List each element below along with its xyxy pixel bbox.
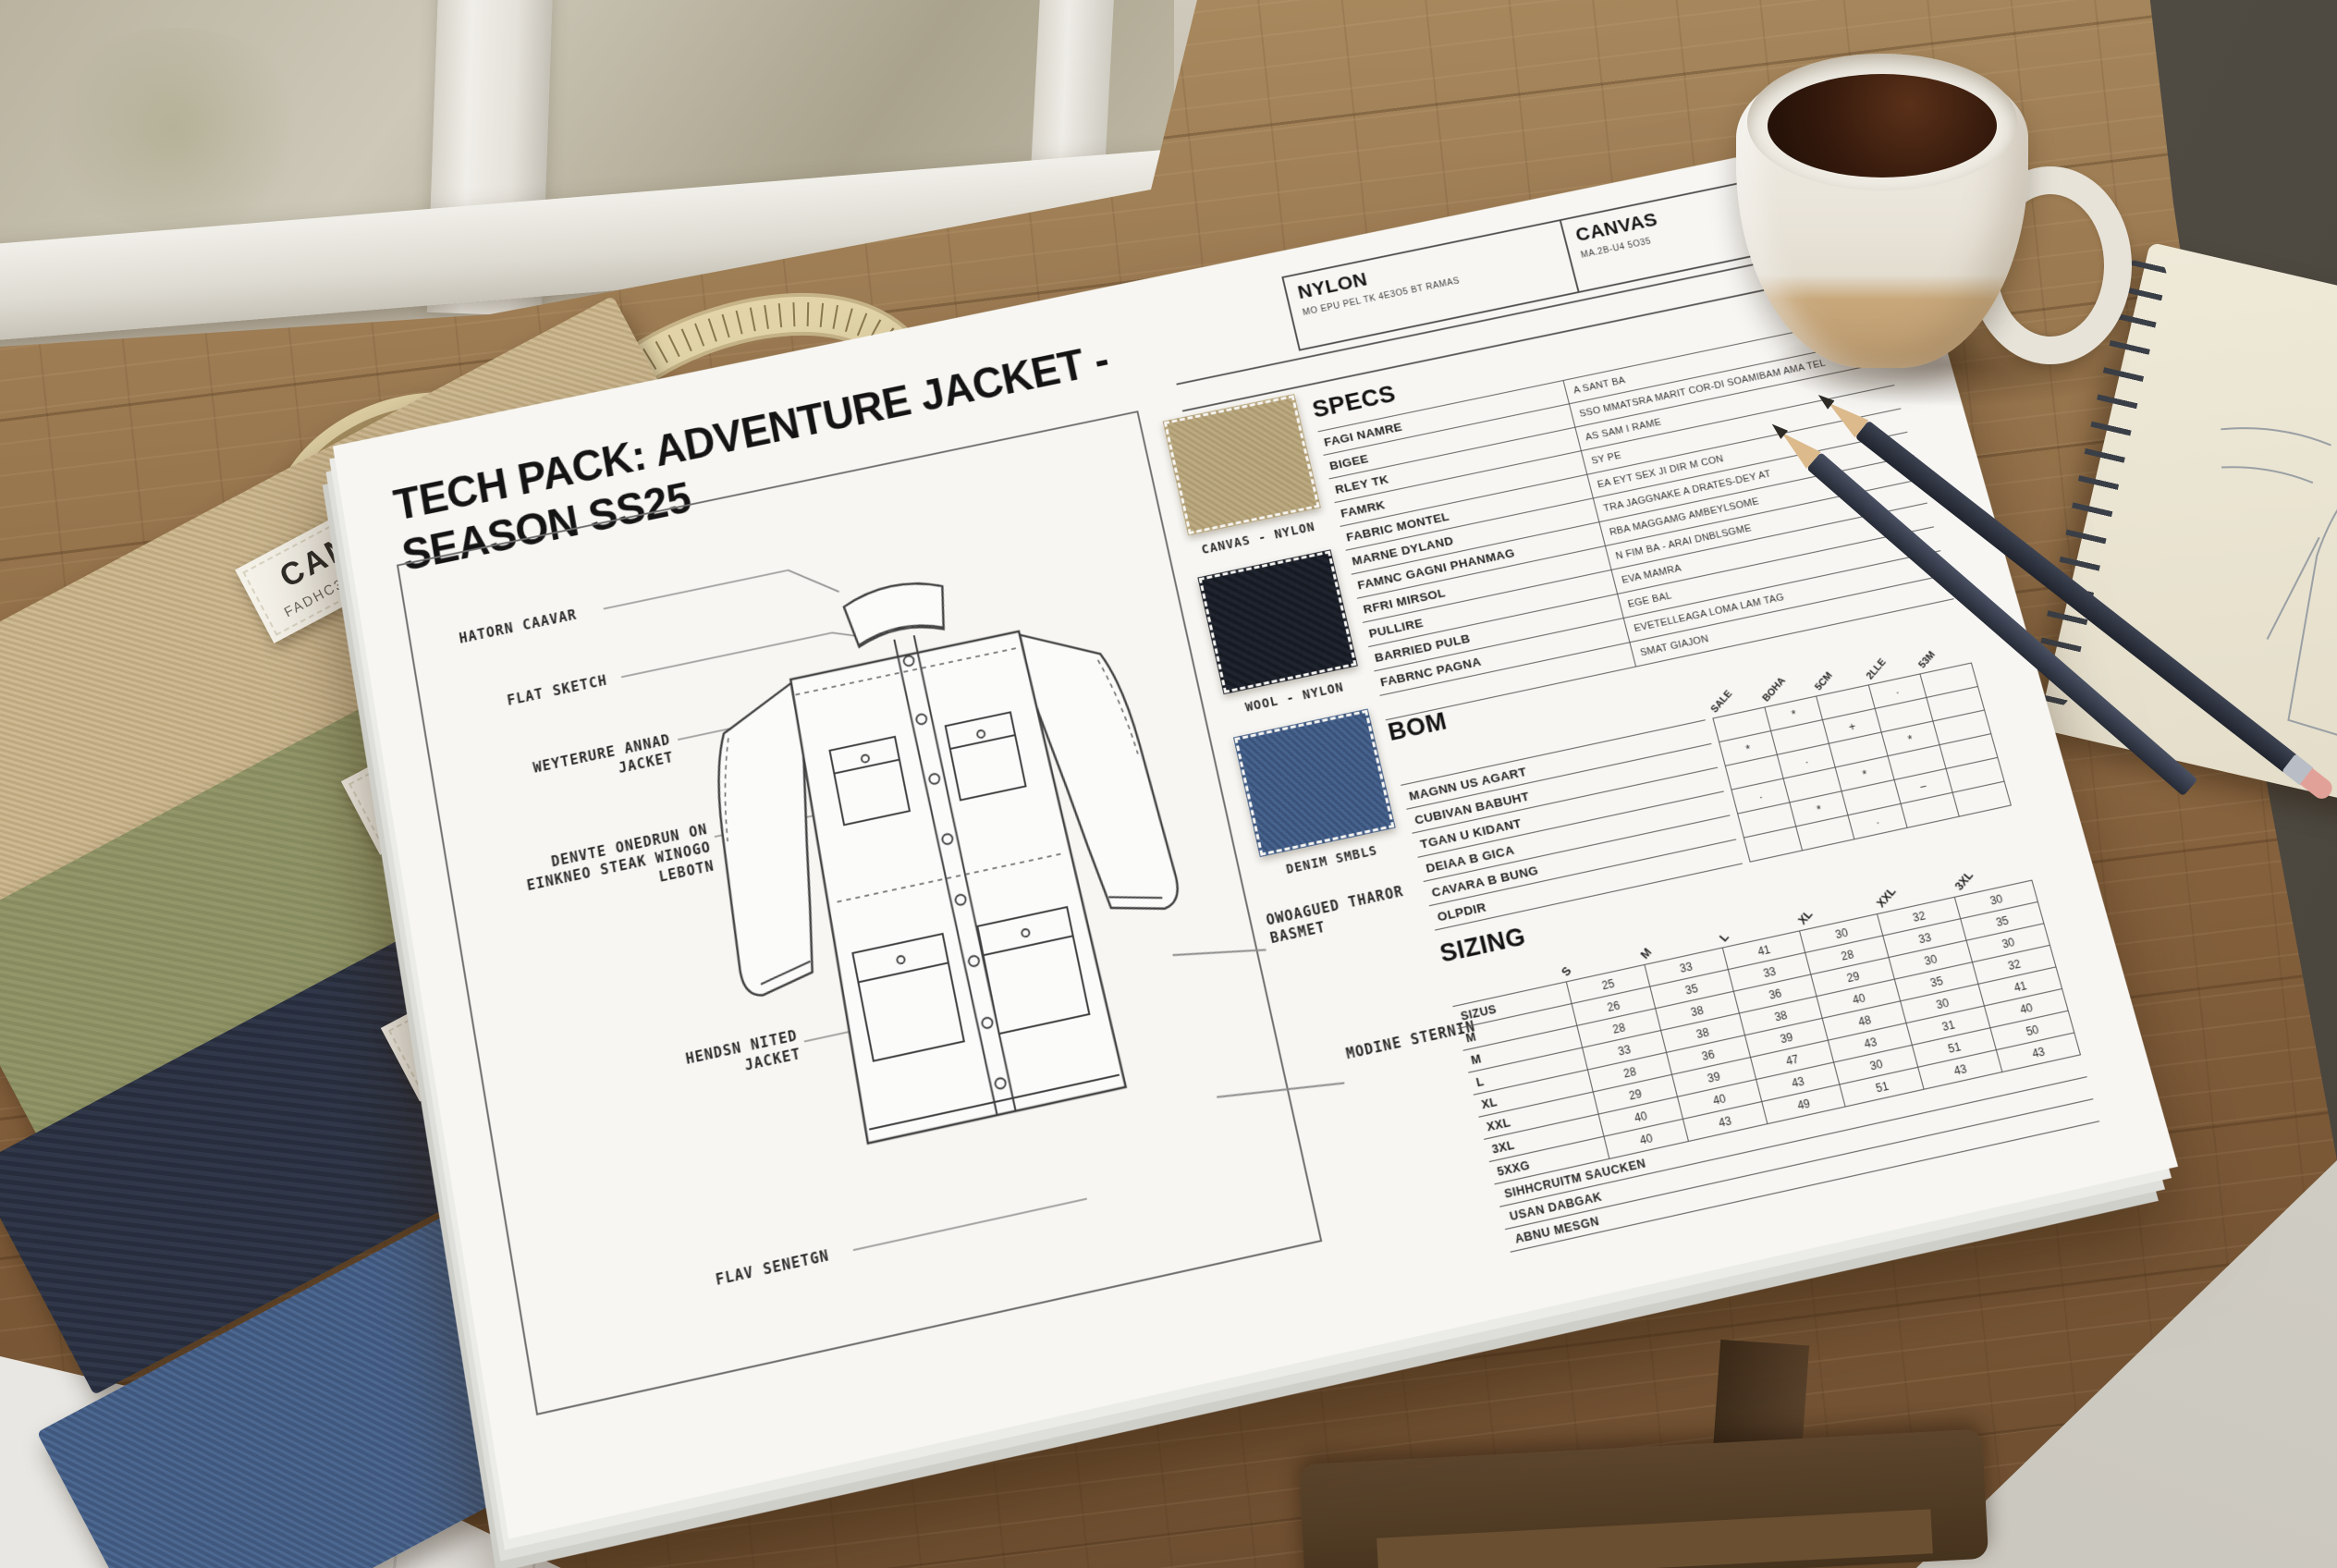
bom-col-header: BOHA [1761,675,1789,704]
coffee-surface [1768,74,1997,178]
size-col-header: XXL [1874,885,1898,910]
bom-col-header: 53M [1916,649,1938,670]
bom-grid: SALE BOHA 5CM 2LLE 53M *· *+ ·* ·* [1705,633,2012,863]
size-col-header: M [1638,946,1655,962]
size-col-header: L [1717,930,1731,944]
bom-col-header: SALE [1708,689,1734,716]
size-col-header: 3XL [1952,869,1976,893]
bom-col-header: 5CM [1813,670,1835,692]
desk-scene: 25 26 27 28 36 38 CANVAS FADHC3 – BAUBID… [0,0,2337,1568]
window-outdoor-blur [37,28,314,231]
coffee-mug [1736,57,2171,409]
swatch-square [1233,709,1396,858]
bom-list: MAGNN US AGART CUBIVAN BABUHT TGAN U KID… [1401,719,1743,930]
bom-col-header: 2LLE [1865,656,1889,681]
paper-swatch-denim: DENIM SMBLS [1233,709,1401,883]
swatch-square [1197,549,1357,694]
sizing-table: S M L XL XXL 3XL SIZUS 253341303230 M 26… [1445,850,2099,1253]
size-col-header: S [1559,964,1573,979]
paper-swatch-canvas-nylon: CANVAS - NYLON [1163,394,1327,559]
window-outdoor-blur [592,9,924,194]
paper-swatch-wool-nylon: WOOL - NYLON [1197,549,1364,718]
size-col-header: XL [1795,908,1815,927]
